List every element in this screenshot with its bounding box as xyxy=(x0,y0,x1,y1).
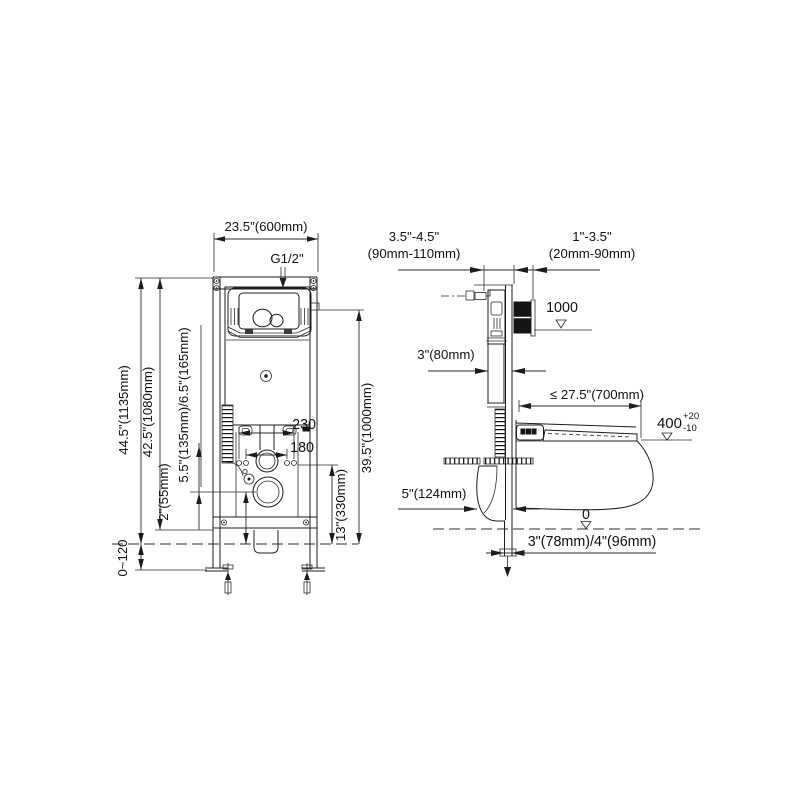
bowl-outline xyxy=(516,441,653,510)
outlet-direction-arrow xyxy=(504,567,511,577)
seat-height-tol-upper: +20 xyxy=(683,411,699,422)
front-view: 23.5"(600mm) G1/2" xyxy=(112,219,374,595)
bolt-span-inner-label: 180 xyxy=(290,440,314,456)
button-height-label: 1000 xyxy=(546,300,578,316)
supply-valve xyxy=(441,290,490,300)
elbow-dimension: 5"(124mm) xyxy=(398,486,540,512)
floor-datum-label: 0 xyxy=(582,507,590,523)
bolt-span-outer-label: 230 xyxy=(292,417,316,433)
front-actuator-height-label: 39.5"(1000mm) xyxy=(359,383,374,473)
side-wall-in-label: 1"-3.5" xyxy=(572,229,612,244)
toilet-bowl xyxy=(516,420,653,510)
technical-drawing-page: 23.5"(600mm) G1/2" xyxy=(0,0,800,800)
seat-height-datum: 400 +20 -10 xyxy=(641,411,699,440)
waste-outlet xyxy=(253,477,283,507)
front-foot-adjust-label: 0~120 xyxy=(115,539,130,576)
toilet-installation-diagram: 23.5"(600mm) G1/2" xyxy=(0,0,800,800)
front-width-label: 23.5"(600mm) xyxy=(224,219,307,234)
side-frame-rail xyxy=(474,285,513,556)
side-wall-mm-label: (20mm-90mm) xyxy=(549,246,635,261)
button-height-datum: 1000 xyxy=(534,300,592,330)
tank-depth-label: 3"(80mm) xyxy=(417,347,474,362)
cistern-front xyxy=(225,287,311,425)
cistern-side xyxy=(486,290,507,457)
flush-plate-side xyxy=(514,300,535,336)
outlet-stub xyxy=(254,530,278,553)
waste-elbow xyxy=(477,466,516,577)
max-length-label: ≤ 27.5"(700mm) xyxy=(550,387,644,402)
seat-height-tol-lower: -10 xyxy=(683,423,697,434)
front-outlet-center-label: 5.5"(135mm)/6.5"(165mm) xyxy=(176,327,191,482)
front-frame-height-label: 42.5"(1080mm) xyxy=(140,367,155,457)
front-fixing-height-label: 13"(330mm) xyxy=(333,469,348,541)
floor-datum: 0 xyxy=(581,507,591,529)
front-floor-gap-label: 2"(55mm) xyxy=(156,463,171,520)
elbow-label: 5"(124mm) xyxy=(402,486,467,501)
front-supply-label: G1/2" xyxy=(270,251,304,266)
seat-height-label: 400 xyxy=(657,415,682,432)
side-depth-mm-label: (90mm-110mm) xyxy=(368,246,461,261)
max-length-dimension: ≤ 27.5"(700mm) xyxy=(519,387,644,438)
tank-depth-dimension: 3"(80mm) xyxy=(417,347,546,374)
front-legs xyxy=(205,530,325,595)
mounting-bracket xyxy=(444,458,533,464)
flush-button-large xyxy=(253,309,272,327)
outlet-pipe-label: 3"(78mm)/4"(96mm) xyxy=(528,534,657,550)
front-total-height-label: 44.5"(1135mm) xyxy=(116,365,131,454)
actuator-bracket xyxy=(311,303,319,310)
outlet-flange xyxy=(500,549,516,556)
front-bolt-dimensions: 230 180 xyxy=(239,417,316,459)
side-view: 3.5"-4.5" (90mm-110mm) 1"-3.5" (20mm-90m… xyxy=(368,229,700,577)
side-depth-in-label: 3.5"-4.5" xyxy=(389,229,440,244)
